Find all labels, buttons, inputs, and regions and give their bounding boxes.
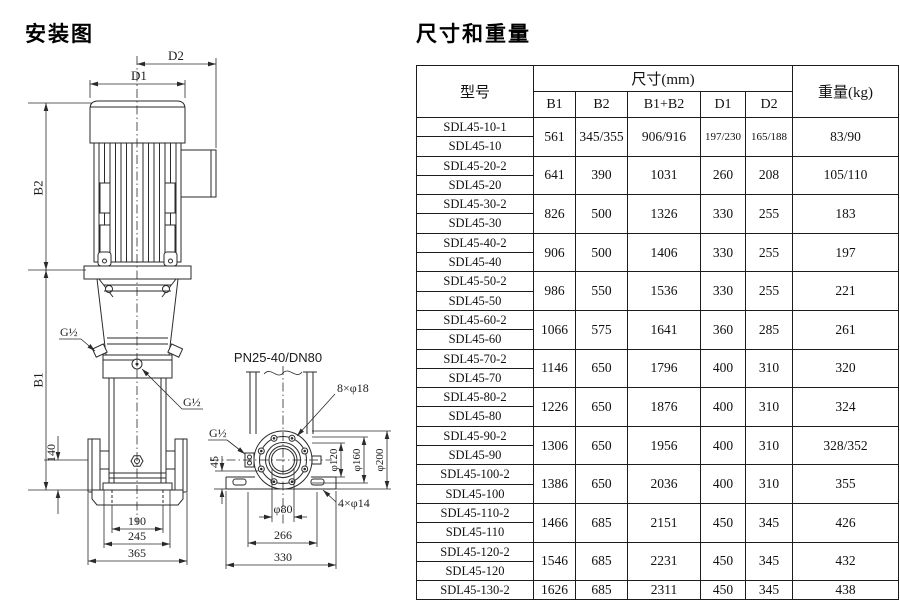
model-cell: SDL45-70 [417,368,534,387]
value-cell: 500 [576,233,628,272]
model-cell: SDL45-100-2 [417,465,534,484]
motor-stool [84,266,191,355]
value-cell: 260 [701,156,746,195]
g-half-label-head: G½ [183,395,201,409]
value-cell: 685 [576,542,628,581]
pump-head [92,344,182,378]
value-cell: 575 [576,310,628,349]
value-cell: 650 [576,426,628,465]
value-cell: 685 [576,503,628,542]
value-cell: 345/355 [576,118,628,157]
value-cell: 650 [576,349,628,388]
value-cell: 641 [534,156,576,195]
dim-label-d2: D2 [168,48,184,63]
value-cell: 1326 [628,195,701,234]
value-cell: 330 [701,233,746,272]
value-cell: 285 [746,310,793,349]
value-cell: 450 [701,503,746,542]
dim-label-190: 190 [128,514,146,528]
dim-label-b2: B2 [31,180,46,195]
table-row: SDL45-50-2 986 550 1536 330 255 221 [417,272,899,291]
value-cell: 1536 [628,272,701,311]
model-cell: SDL45-70-2 [417,349,534,368]
value-cell: 261 [793,310,899,349]
model-cell: SDL45-90 [417,446,534,465]
value-cell: 400 [701,465,746,504]
value-cell: 826 [534,195,576,234]
table-row: SDL45-30-2 826 500 1326 330 255 183 [417,195,899,214]
value-cell: 561 [534,118,576,157]
model-cell: SDL45-120-2 [417,542,534,561]
value-cell: 450 [701,542,746,581]
model-cell: SDL45-20-2 [417,156,534,175]
model-cell: SDL45-80-2 [417,388,534,407]
model-cell: SDL45-120 [417,561,534,580]
model-cell: SDL45-40 [417,253,534,272]
model-cell: SDL45-60-2 [417,310,534,329]
value-cell: 550 [576,272,628,311]
model-cell: SDL45-30-2 [417,195,534,214]
value-cell: 1626 [534,581,576,600]
value-cell: 83/90 [793,118,899,157]
value-cell: 426 [793,503,899,542]
value-cell: 2151 [628,503,701,542]
value-cell: 328/352 [793,426,899,465]
datasheet-page: { "diagram": { "title": "安装图", "labels":… [0,0,900,581]
motor [90,101,216,266]
table-row: SDL45-90-2 1306 650 1956 400 310 328/352 [417,426,899,445]
bolt-circle-label: 8×φ18 [337,381,369,395]
value-cell: 1546 [534,542,576,581]
pump-barrel [109,378,166,483]
pump-base [92,483,183,505]
model-cell: SDL45-80 [417,407,534,426]
value-cell: 183 [793,195,899,234]
dimensions-weight-panel: 尺寸和重量 型号 尺寸(mm) 重量(kg) B1 B2 B1+B2 D1 D2… [416,18,898,600]
value-cell: 165/188 [746,118,793,157]
value-cell: 650 [576,465,628,504]
dim-label-phi80: φ80 [274,502,293,516]
value-cell: 1306 [534,426,576,465]
dimensions-weight-table: 型号 尺寸(mm) 重量(kg) B1 B2 B1+B2 D1 D2 SDL45… [416,65,899,600]
value-cell: 2036 [628,465,701,504]
col-header-b2: B2 [576,92,628,118]
value-cell: 438 [793,581,899,600]
model-cell: SDL45-110-2 [417,503,534,522]
col-header-weight: 重量(kg) [793,66,899,118]
value-cell: 310 [746,349,793,388]
dim-label-140: 140 [44,444,58,462]
table-row: SDL45-80-2 1226 650 1876 400 310 324 [417,388,899,407]
dim-label-phi160: φ160 [351,448,363,471]
value-cell: 197 [793,233,899,272]
value-cell: 390 [576,156,628,195]
value-cell: 255 [746,195,793,234]
table-row: SDL45-120-2 1546 685 2231 450 345 432 [417,542,899,561]
value-cell: 360 [701,310,746,349]
col-header-model: 型号 [417,66,534,118]
g-half-label-flange: G½ [209,426,227,440]
model-cell: SDL45-110 [417,523,534,542]
table-row: SDL45-20-2 641 390 1031 260 208 105/110 [417,156,899,175]
model-cell: SDL45-60 [417,330,534,349]
model-cell: SDL45-20 [417,175,534,194]
value-cell: 1031 [628,156,701,195]
value-cell: 1466 [534,503,576,542]
value-cell: 906 [534,233,576,272]
table-row: SDL45-100-2 1386 650 2036 400 310 355 [417,465,899,484]
value-cell: 2311 [628,581,701,600]
table-title: 尺寸和重量 [416,18,898,48]
value-cell: 355 [793,465,899,504]
value-cell: 310 [746,388,793,427]
g-half-label-left: G½ [60,325,78,339]
table-row: SDL45-110-2 1466 685 2151 450 345 426 [417,503,899,522]
value-cell: 1386 [534,465,576,504]
value-cell: 1146 [534,349,576,388]
value-cell: 345 [746,542,793,581]
value-cell: 685 [576,581,628,600]
value-cell: 1956 [628,426,701,465]
value-cell: 1876 [628,388,701,427]
value-cell: 324 [793,388,899,427]
value-cell: 400 [701,349,746,388]
value-cell: 105/110 [793,156,899,195]
dim-label-phi120: φ120 [328,448,340,471]
table-row: SDL45-70-2 1146 650 1796 400 310 320 [417,349,899,368]
value-cell: 345 [746,503,793,542]
value-cell: 450 [701,581,746,600]
dim-label-phi200: φ200 [374,448,386,471]
dim-label-d1: D1 [131,68,147,83]
installation-drawing: D2 D1 B2 B1 140 190 245 365 G½ G½ PN25-4… [0,0,415,581]
value-cell: 650 [576,388,628,427]
value-cell: 255 [746,272,793,311]
value-cell: 330 [701,272,746,311]
value-cell: 208 [746,156,793,195]
value-cell: 1406 [628,233,701,272]
model-cell: SDL45-130-2 [417,581,534,600]
table-row: SDL45-10-1 561 345/355 906/916 197/230 1… [417,118,899,137]
model-cell: SDL45-50-2 [417,272,534,291]
value-cell: 1796 [628,349,701,388]
value-cell: 330 [701,195,746,234]
value-cell: 320 [793,349,899,388]
value-cell: 1226 [534,388,576,427]
dim-label-266: 266 [274,528,292,542]
col-header-b1b2: B1+B2 [628,92,701,118]
value-cell: 197/230 [701,118,746,157]
model-cell: SDL45-10 [417,137,534,156]
col-header-size-group: 尺寸(mm) [534,66,793,92]
table-row: SDL45-130-2 1626 685 2311 450 345 438 [417,581,899,600]
value-cell: 2231 [628,542,701,581]
value-cell: 221 [793,272,899,311]
value-cell: 310 [746,426,793,465]
col-header-b1: B1 [534,92,576,118]
value-cell: 400 [701,388,746,427]
value-cell: 1066 [534,310,576,349]
model-cell: SDL45-30 [417,214,534,233]
value-cell: 906/916 [628,118,701,157]
model-cell: SDL45-90-2 [417,426,534,445]
model-cell: SDL45-50 [417,291,534,310]
value-cell: 310 [746,465,793,504]
col-header-d1: D1 [701,92,746,118]
model-cell: SDL45-10-1 [417,118,534,137]
value-cell: 1641 [628,310,701,349]
table-row: SDL45-60-2 1066 575 1641 360 285 261 [417,310,899,329]
dim-label-45: 45 [207,456,221,468]
value-cell: 500 [576,195,628,234]
value-cell: 255 [746,233,793,272]
table-row: SDL45-40-2 906 500 1406 330 255 197 [417,233,899,252]
col-header-d2: D2 [746,92,793,118]
value-cell: 986 [534,272,576,311]
model-cell: SDL45-100 [417,484,534,503]
dim-label-365: 365 [128,546,146,560]
dim-label-b1: B1 [31,372,46,387]
model-cell: SDL45-40-2 [417,233,534,252]
value-cell: 432 [793,542,899,581]
value-cell: 400 [701,426,746,465]
value-cell: 345 [746,581,793,600]
flange-spec-label: PN25-40/DN80 [234,350,322,365]
dim-label-245: 245 [128,529,146,543]
foot-holes-label: 4×φ14 [338,496,370,510]
dim-label-330: 330 [274,550,292,564]
